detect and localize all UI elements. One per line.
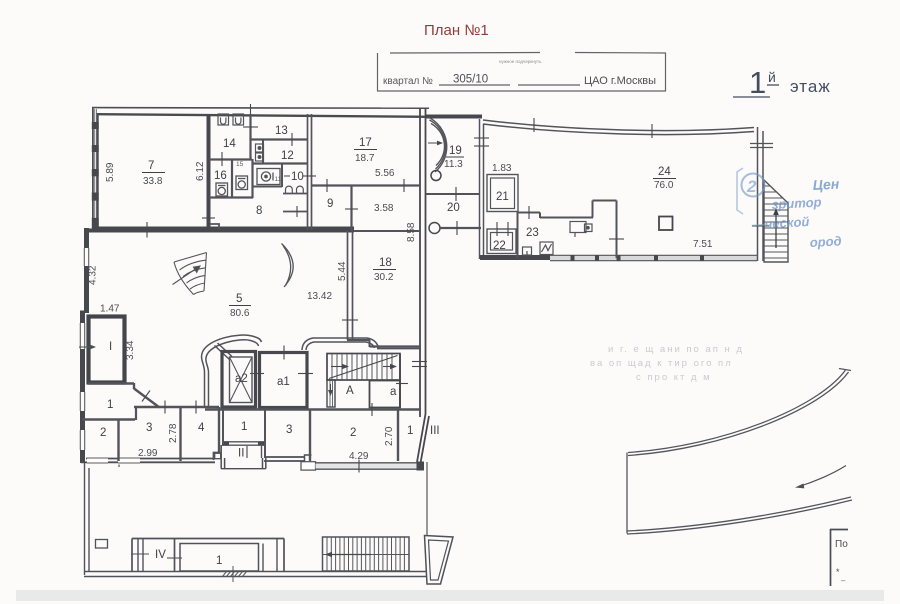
svg-text:2.70: 2.70 — [384, 426, 395, 446]
svg-text:I: I — [109, 341, 112, 353]
svg-text:8: 8 — [256, 205, 262, 217]
svg-text:5.44: 5.44 — [337, 261, 348, 281]
svg-text:305/10: 305/10 — [453, 74, 488, 86]
svg-text:3: 3 — [146, 422, 152, 434]
svg-text:24: 24 — [658, 166, 671, 178]
svg-text:15: 15 — [236, 161, 244, 168]
svg-text:й: й — [768, 69, 776, 85]
svg-text:14: 14 — [223, 138, 236, 150]
svg-text:76.0: 76.0 — [654, 180, 674, 191]
svg-text:7: 7 — [148, 160, 154, 172]
svg-text:17: 17 — [359, 137, 372, 149]
svg-text:21: 21 — [496, 191, 509, 203]
svg-text:22: 22 — [493, 240, 506, 252]
svg-text:9: 9 — [327, 198, 333, 210]
svg-text:23: 23 — [526, 227, 539, 239]
svg-text:13.42: 13.42 — [307, 291, 332, 302]
svg-text:18: 18 — [379, 257, 392, 269]
svg-text:II: II — [238, 448, 244, 460]
svg-text:1: 1 — [407, 425, 413, 437]
svg-text:19: 19 — [449, 145, 462, 157]
svg-text:По: По — [835, 539, 848, 550]
svg-text:зритор: зритор — [771, 194, 822, 212]
svg-text:4.32: 4.32 — [88, 265, 99, 285]
svg-text:—ческой: —ческой — [750, 214, 809, 232]
svg-text:а2: а2 — [235, 373, 248, 385]
svg-text:ЦАО г.Москвы: ЦАО г.Москвы — [584, 75, 656, 87]
svg-text:33.8: 33.8 — [143, 176, 163, 187]
svg-text:5.56: 5.56 — [375, 168, 395, 179]
svg-text:11.3: 11.3 — [444, 159, 463, 170]
svg-text:80.6: 80.6 — [230, 308, 250, 319]
svg-text:План №1: План №1 — [424, 22, 489, 39]
svg-text:18.7: 18.7 — [355, 153, 375, 164]
svg-text:1: 1 — [749, 65, 766, 100]
svg-text:7.51: 7.51 — [693, 239, 713, 250]
svg-text:IV: IV — [155, 549, 166, 561]
svg-text:2: 2 — [746, 177, 757, 196]
svg-text:5.89: 5.89 — [105, 162, 116, 182]
svg-text:2.78: 2.78 — [168, 423, 179, 443]
svg-text:4: 4 — [198, 422, 205, 434]
svg-text:10: 10 — [291, 171, 304, 183]
svg-text:3.34: 3.34 — [125, 340, 136, 360]
svg-text:1.47: 1.47 — [100, 304, 120, 315]
svg-text:12: 12 — [281, 150, 294, 162]
svg-text:20: 20 — [447, 202, 460, 214]
svg-text:квартал №: квартал № — [383, 76, 433, 87]
svg-text:16: 16 — [214, 170, 227, 182]
svg-text:ва оп щад к тир ого пл: ва оп щад к тир ого пл — [590, 358, 733, 369]
svg-text:30.2: 30.2 — [374, 272, 394, 283]
svg-text:*: * — [836, 567, 840, 577]
svg-text:1: 1 — [107, 399, 113, 411]
svg-text:11: 11 — [275, 176, 282, 183]
svg-text:ород: ород — [809, 233, 842, 250]
svg-text:А: А — [346, 385, 354, 397]
svg-text:а: а — [390, 386, 397, 398]
svg-text:13: 13 — [275, 125, 288, 137]
svg-text:III: III — [430, 425, 440, 437]
svg-text:8.58: 8.58 — [406, 222, 417, 242]
svg-text:1: 1 — [241, 421, 247, 433]
svg-text:6.12: 6.12 — [195, 161, 206, 181]
svg-text:и г. е щ ани по ап н д: и г. е щ ани по ап н д — [608, 344, 744, 355]
svg-text:3.58: 3.58 — [374, 203, 394, 214]
svg-text:а1: а1 — [277, 376, 290, 388]
svg-text:этаж: этаж — [790, 77, 831, 96]
svg-text:–: – — [841, 576, 846, 585]
svg-text:3: 3 — [286, 424, 292, 436]
svg-text:1.83: 1.83 — [492, 163, 512, 174]
svg-text:нужное подчеркнуть: нужное подчеркнуть — [499, 59, 542, 64]
svg-text:2: 2 — [100, 427, 106, 439]
svg-text:5: 5 — [236, 293, 242, 305]
svg-text:2.99: 2.99 — [138, 448, 158, 459]
svg-text:Цен: Цен — [812, 176, 840, 193]
svg-text:1: 1 — [216, 555, 222, 567]
svg-text:2: 2 — [350, 427, 356, 439]
svg-text:с про кт д м: с про кт д м — [636, 372, 712, 383]
svg-text:4.29: 4.29 — [349, 451, 369, 462]
